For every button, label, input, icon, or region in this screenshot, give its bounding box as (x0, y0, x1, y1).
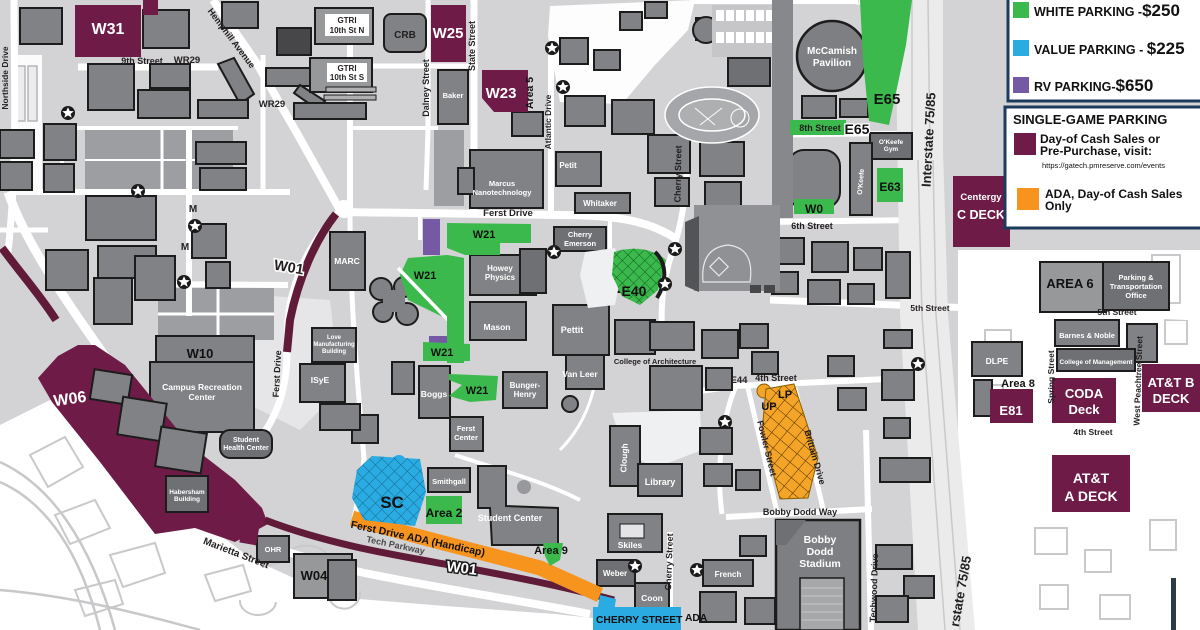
svg-text:Northside Drive: Northside Drive (0, 46, 10, 110)
svg-text:DLPE: DLPE (986, 356, 1009, 366)
svg-text:Center: Center (454, 433, 478, 442)
svg-text:W21: W21 (431, 347, 454, 359)
svg-text:Skiles: Skiles (618, 540, 643, 550)
svg-text:Only: Only (1045, 199, 1072, 213)
svg-text:AREA 6: AREA 6 (1046, 276, 1093, 291)
svg-text:Building: Building (174, 496, 200, 503)
svg-text:Pavilion: Pavilion (813, 58, 851, 69)
svg-text:5th Street: 5th Street (910, 303, 949, 313)
svg-text:W10: W10 (187, 346, 214, 361)
svg-text:Office: Office (1125, 291, 1146, 300)
svg-text:W21: W21 (466, 385, 489, 397)
svg-text:Area 8: Area 8 (1001, 378, 1035, 390)
svg-text:Clough: Clough (618, 443, 630, 473)
svg-text:UP: UP (761, 401, 776, 413)
svg-text:Campus Recreation: Campus Recreation (162, 382, 242, 392)
svg-text:Baker: Baker (443, 91, 464, 100)
svg-text:ADA: ADA (685, 613, 708, 624)
svg-text:Manufacturing: Manufacturing (313, 342, 355, 348)
svg-text:Stadium: Stadium (799, 558, 840, 570)
svg-text:State Street: State Street (467, 21, 477, 71)
svg-text:French: French (715, 570, 742, 579)
svg-text:Pre-Purchase, visit:: Pre-Purchase, visit: (1040, 144, 1152, 158)
svg-text:SC: SC (380, 493, 404, 512)
svg-text:Petit: Petit (559, 161, 577, 170)
svg-text:Smithgall: Smithgall (432, 477, 466, 486)
svg-text:Howey: Howey (487, 264, 513, 273)
svg-text:Spring Street: Spring Street (1046, 350, 1056, 404)
svg-text:A DECK: A DECK (1064, 488, 1117, 504)
svg-text:10th St N: 10th St N (330, 26, 365, 35)
svg-text:Boggs: Boggs (421, 389, 448, 399)
svg-text:Library: Library (645, 477, 676, 487)
svg-text:https://gatech.pmreserve.com/e: https://gatech.pmreserve.com/events (1042, 161, 1165, 170)
svg-text:M: M (181, 242, 189, 253)
svg-text:Cherry Street: Cherry Street (673, 145, 684, 202)
svg-text:Love: Love (327, 335, 342, 341)
svg-text:6th Street: 6th Street (791, 221, 833, 231)
svg-text:Mason: Mason (484, 322, 511, 332)
svg-text:Student Center: Student Center (478, 513, 543, 523)
svg-text:Physics: Physics (485, 273, 516, 282)
svg-text:W25: W25 (433, 25, 464, 42)
svg-text:4th Street: 4th Street (1073, 427, 1112, 437)
svg-text:College of Management: College of Management (1060, 359, 1134, 366)
svg-text:Barnes & Noble: Barnes & Noble (1059, 331, 1115, 340)
svg-text:CRB: CRB (394, 30, 416, 41)
svg-text:Nanotechnology: Nanotechnology (473, 188, 533, 197)
svg-text:W23: W23 (486, 85, 517, 102)
svg-text:Student: Student (233, 437, 260, 444)
svg-text:Gym: Gym (884, 146, 899, 153)
svg-text:Parking &: Parking & (1118, 273, 1154, 282)
svg-text:Area 9: Area 9 (534, 545, 568, 557)
svg-text:Emerson: Emerson (564, 239, 597, 248)
svg-text:Building: Building (322, 349, 346, 355)
svg-text:Center: Center (189, 392, 217, 402)
svg-text:Atlantic Drive: Atlantic Drive (543, 94, 553, 149)
svg-text:E40: E40 (622, 283, 647, 299)
svg-text:Pettit: Pettit (561, 325, 584, 335)
svg-text:GTRI: GTRI (337, 64, 356, 73)
svg-text:WR29: WR29 (174, 55, 200, 66)
svg-text:Henry: Henry (514, 390, 537, 399)
svg-text:Marcus: Marcus (489, 179, 515, 188)
svg-text:College of Architecture: College of Architecture (614, 357, 696, 366)
svg-text:MARC: MARC (334, 256, 360, 266)
svg-text:Weber: Weber (603, 569, 627, 578)
svg-text:M: M (189, 204, 197, 215)
svg-text:O'Keefe: O'Keefe (879, 139, 904, 146)
svg-text:AT&T B: AT&T B (1148, 375, 1195, 390)
svg-text:W04: W04 (301, 568, 329, 583)
svg-text:E65: E65 (874, 91, 901, 108)
svg-text:E65: E65 (845, 121, 870, 137)
svg-text:10th St S: 10th St S (330, 73, 365, 82)
svg-text:CODA: CODA (1065, 386, 1104, 401)
svg-text:McCamish: McCamish (807, 46, 857, 57)
svg-text:Health Center: Health Center (223, 445, 269, 452)
svg-text:Transportation: Transportation (1110, 282, 1163, 291)
svg-text:5th Street: 5th Street (1097, 307, 1136, 317)
svg-text:Bobby Dodd Way: Bobby Dodd Way (763, 507, 837, 517)
svg-text:Area 2: Area 2 (426, 506, 463, 520)
svg-text:Dalney Street: Dalney Street (421, 59, 431, 117)
svg-text:Deck: Deck (1068, 402, 1100, 417)
svg-text:LP: LP (778, 389, 792, 401)
svg-text:Coon: Coon (641, 593, 663, 603)
svg-text:Cherry Street: Cherry Street (663, 533, 675, 590)
svg-text:Area 5: Area 5 (524, 77, 536, 109)
svg-text:Bobby: Bobby (804, 534, 837, 546)
svg-text:E81: E81 (999, 403, 1022, 418)
svg-text:WR29: WR29 (259, 99, 285, 110)
svg-text:W0: W0 (805, 202, 823, 216)
svg-text:Whitaker: Whitaker (583, 199, 617, 208)
svg-text:GTRI: GTRI (337, 16, 356, 25)
svg-text:Dodd: Dodd (807, 546, 834, 558)
svg-text:4th Street: 4th Street (755, 373, 797, 383)
svg-text:Centergy: Centergy (960, 192, 1002, 203)
svg-text:8th Street: 8th Street (799, 123, 841, 133)
svg-text:W31: W31 (92, 21, 125, 38)
svg-text:OHR: OHR (265, 545, 282, 554)
svg-text:C DECK: C DECK (957, 208, 1005, 222)
svg-text:Habersham: Habersham (169, 489, 205, 496)
svg-text:Ferst Drive: Ferst Drive (483, 208, 533, 219)
svg-text:Cherry: Cherry (568, 230, 593, 239)
svg-text:CHERRY STREET: CHERRY STREET (596, 615, 683, 626)
svg-text:E44: E44 (731, 375, 749, 386)
svg-text:9th Street: 9th Street (121, 56, 163, 66)
svg-text:Ferst: Ferst (457, 424, 476, 433)
svg-text:ISyE: ISyE (311, 375, 330, 385)
svg-text:DECK: DECK (1153, 391, 1190, 406)
svg-text:E63: E63 (879, 180, 901, 194)
svg-text:Bunger-: Bunger- (510, 381, 541, 390)
svg-text:W21: W21 (414, 270, 437, 282)
svg-text:Van Leer: Van Leer (562, 369, 598, 379)
svg-text:SINGLE-GAME PARKING: SINGLE-GAME PARKING (1013, 112, 1167, 127)
svg-text:W21: W21 (473, 229, 496, 241)
svg-text:AT&T: AT&T (1073, 470, 1110, 486)
